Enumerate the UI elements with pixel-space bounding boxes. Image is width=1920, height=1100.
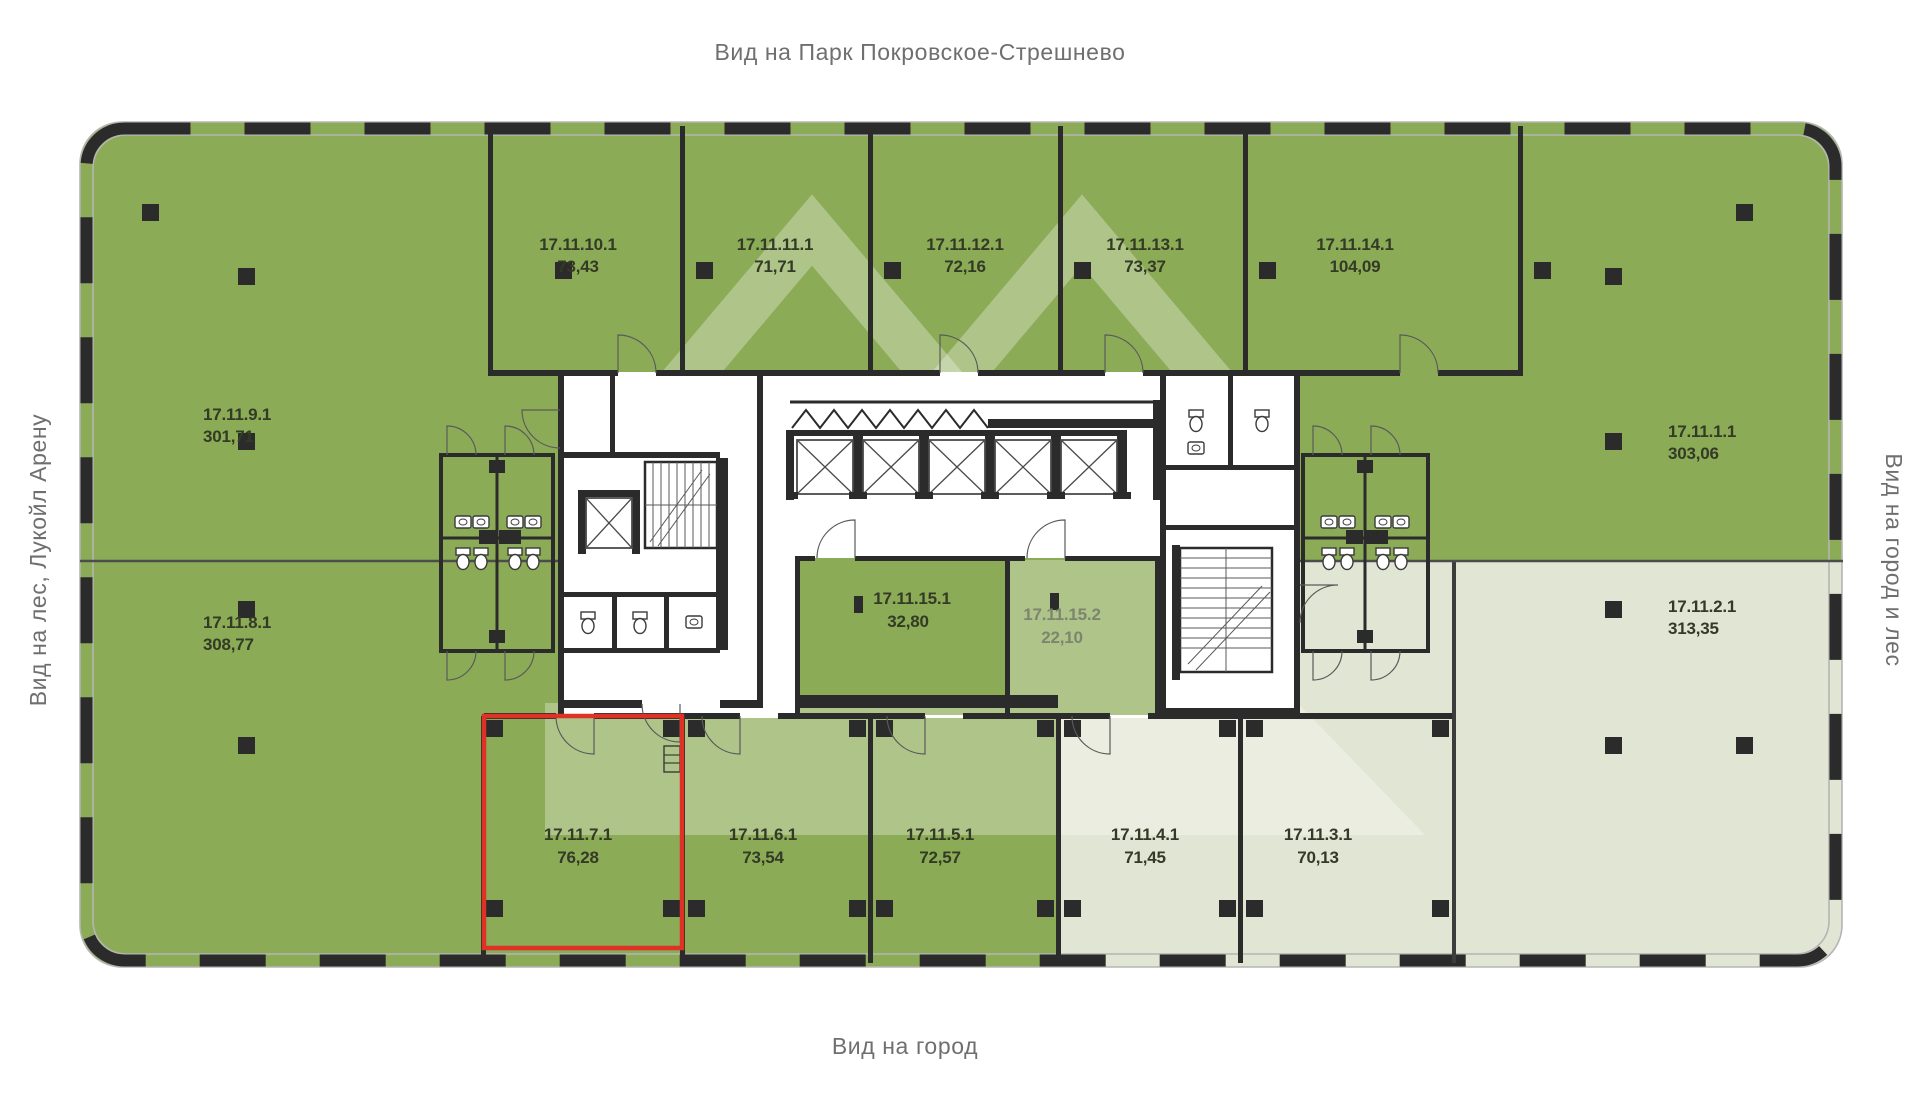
view-label-right: Вид на город и лес — [1881, 453, 1907, 666]
unit-region-17-11-1-1[interactable] — [1520, 122, 1843, 561]
unit-region-17-11-8-1[interactable] — [80, 561, 490, 967]
unit-region-17-11-13-1[interactable] — [1060, 122, 1245, 373]
unit-region-17-11-10-1[interactable] — [490, 122, 682, 373]
floorplan-page: 17.11.10.1 73,43 17.11.11.1 71,71 17.11.… — [0, 0, 1920, 1100]
unit-region-17-11-12-1[interactable] — [870, 122, 1060, 373]
unit-region-17-11-2-1[interactable] — [1455, 561, 1843, 967]
unit-region-17-11-5-1[interactable] — [870, 716, 1058, 963]
unit-region-17-11-4-1[interactable] — [1058, 716, 1240, 963]
unit-region-17-11-9-1[interactable] — [80, 122, 490, 561]
unit-region-17-11-15-1[interactable] — [795, 561, 1005, 715]
unit-region-17-11-14-1[interactable] — [1245, 122, 1520, 373]
view-label-bottom: Вид на город — [832, 1033, 978, 1059]
view-label-left: Вид на лес, Лукойл Арену — [25, 414, 51, 707]
unit-region-17-11-15-2[interactable] — [1005, 561, 1160, 715]
unit-region-17-11-7-1[interactable] — [484, 716, 682, 963]
unit-region-17-11-6-1[interactable] — [682, 716, 870, 963]
view-label-top: Вид на Парк Покровское-Стрешнево — [714, 39, 1125, 65]
unit-region-17-11-3-1[interactable] — [1240, 716, 1455, 963]
floor-plan: 17.11.10.1 73,43 17.11.11.1 71,71 17.11.… — [0, 0, 1920, 1100]
unit-region-17-11-11-1[interactable] — [682, 122, 870, 373]
